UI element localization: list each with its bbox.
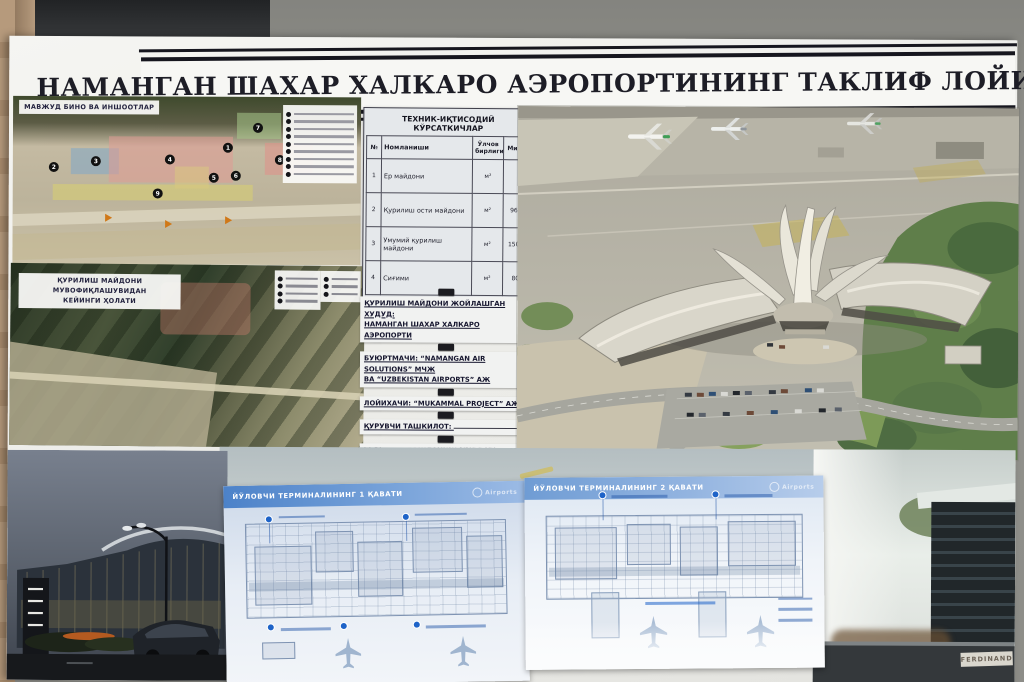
plan-room [626,524,670,565]
poster-board: НАМАНГАН ШАХАР ХАЛКАРО АЭРОПОРТИНИНГ ТАК… [7,36,1018,682]
callout-leader [716,495,717,520]
info-designer: ЛОЙИХАЧИ: “MUKAMMAL PROJECT” АЖ [364,398,528,409]
plan1-title: ЙЎЛОВЧИ ТЕРМИНАЛИНИНГ 1 ҚАВАТИ [232,490,402,501]
binder-clip [438,289,454,296]
ferdinand-label: FERDINAND [960,651,1012,667]
table-title: ТЕХНИК-ИҚТИСОДИЙ КЎРСАТКИЧЛАР [366,110,530,136]
info-client-line2: ВА “UZBEKISTAN AIRPORTS” АЖ [364,375,528,386]
legend-item [286,127,354,132]
plan-room [315,531,354,573]
plan2-drawing-area [524,498,824,670]
map2-legend-b [321,271,361,302]
callout-note [280,627,330,630]
plan1-drawing-area [224,503,530,682]
map-marker: 1 [223,143,233,153]
callout-note [611,495,667,498]
map-marker: 9 [153,188,163,198]
plan2-title: ЙЎЛОВЧИ ТЕРМИНАЛИНИНГ 2 ҚАВАТИ [533,483,703,492]
plan-detail-box [262,642,295,659]
adjusted-site-map: ҚУРИЛИШ МАЙДОНИ МУВОФИҚЛАШУВИДАН КЕЙИНГИ… [9,263,365,448]
plan-legend-bar [778,608,812,611]
map2-legend-a [274,270,320,309]
info-location-label: ҚУРИЛИШ МАЙДОНИ ЖОЙЛАШГАН ХУДУД: [364,298,528,320]
col-header-name: Номланиши [382,136,473,160]
cell-no: 2 [366,193,381,227]
map-marker: 2 [49,162,59,172]
apron-strip [12,223,361,261]
airports-logo: Airports [769,482,814,492]
cell-unit: м² [472,159,503,193]
callout-note [725,494,773,497]
overexposed-fade [525,621,824,670]
callout-dot [266,516,272,522]
info-strip-location: ҚУРИЛИШ МАЙДОНИ ЖОЙЛАШГАН ХУДУД: НАМАНГА… [360,296,532,343]
photo-terminal-dusk [7,450,228,681]
map2-title: ҚУРИЛИШ МАЙДОНИ МУВОФИҚЛАШУВИДАН КЕЙИНГИ… [18,273,180,310]
blank-underline [454,422,518,429]
callout-dot [599,492,605,498]
info-builder: ҚУРУВЧИ ТАШКИЛОТ: [364,422,528,433]
callout-dot [341,623,347,629]
plan-room [412,527,463,573]
floor-plan-sheet-1: ЙЎЛОВЧИ ТЕРМИНАЛИНИНГ 1 ҚАВАТИ Airports [223,481,530,682]
map-marker: 5 [209,173,219,183]
banner-rule-top [139,43,1017,52]
binder-clip [438,412,454,419]
cell-name: Ер майдони [381,159,472,194]
legend-item [286,112,354,117]
info-strip-client: БУЮРТМАЧИ: “NAMANGAN AIR SOLUTIONS” МЧЖ … [360,351,532,387]
floor-plan-sheet-2: ЙЎЛОВЧИ ТЕРМИНАЛИНИНГ 2 ҚАВАТИ Airports [524,476,824,670]
cell-name: Умумий қурилиш майдони [381,227,472,262]
plan-legend-bar [778,597,812,600]
binder-clip [438,344,454,351]
callout-note [278,515,324,518]
binder-clip [438,435,454,442]
terminal-aerial-render [517,106,1020,460]
field-patch [9,340,217,448]
cell-unit: м² [472,227,503,261]
direction-arrow [225,216,232,224]
plan-room [728,521,796,566]
legend-item [286,172,354,177]
table-row: 3 Умумий қурилиш майдони м² 15000.0 [366,227,538,262]
callout-dot [268,625,274,631]
logo-ring-icon [472,487,482,497]
zone-khaki [175,167,209,189]
airplane-silhouette [450,635,477,671]
legend-item [286,157,354,162]
existing-site-map: 1 2 3 4 5 6 7 8 9 МАВЖУД БИН [12,96,361,266]
cell-unit: м² [472,193,503,227]
logo-ring-icon [769,482,779,492]
legend-item [286,134,354,139]
airports-logo: Airports [472,487,517,498]
legend-item [286,164,354,169]
callout-note [426,624,486,628]
binder-clip [438,388,454,395]
legend-item [286,142,354,147]
map-marker: 4 [165,154,175,164]
legend-item [286,119,354,124]
tech-indicators-table: № Номланиши Ўлчов бирлиги Миқдор 1 Ер ма… [365,135,539,296]
callout-note [415,513,467,516]
map2-title-line1: ҚУРИЛИШ МАЙДОНИ МУВОФИҚЛАШУВИДАН [24,276,176,297]
cell-no: 3 [366,227,381,261]
plan-room [255,546,313,606]
aerial-render-graphic [517,106,1020,460]
callout-leader [602,496,603,521]
plan2-header: ЙЎЛОВЧИ ТЕРМИНАЛИНИНГ 2 ҚАВАТИ Airports [524,476,823,500]
logo-text: Airports [782,483,814,490]
map1-title: МАВЖУД БИНО ВА ИНШООТЛАР [19,100,159,115]
building-glass-facade [931,502,1016,644]
map2-title-line2: КЕЙИНГИ ҲОЛАТИ [23,296,175,307]
info-strip-builder: ҚУРУВЧИ ТАШКИЛОТ: [360,420,532,435]
runway-strip [12,203,361,227]
map-legend [283,105,357,183]
col-header-no: № [367,136,382,159]
tech-indicators-panel: ТЕХНИК-ИҚТИСОДИЙ КЎРСАТКИЧЛАР № Номланиш… [362,107,533,299]
dusk-render-graphic [7,450,228,681]
callout-dot [414,622,420,628]
airplane-silhouette [335,637,362,673]
info-strip-designer: ЛОЙИХАЧИ: “MUKAMMAL PROJECT” АЖ [360,396,532,411]
map-marker: 3 [91,156,101,166]
map-marker: 6 [231,171,241,181]
cell-no: 1 [366,159,381,193]
direction-arrow [105,214,112,222]
callout-dot [403,514,409,520]
map-marker: 7 [253,123,263,133]
direction-arrow [165,220,172,228]
col-header-unit: Ўлчов бирлиги [473,136,504,159]
info-client-line1: БУЮРТМАЧИ: “NAMANGAN AIR SOLUTIONS” МЧЖ [364,353,528,375]
legend-item [286,149,354,154]
photo-terminal-day: FERDINAND [813,449,1016,682]
logo-text: Airports [485,488,517,496]
cell-name: Қурилиш ости майдони [381,193,472,228]
info-location-value: НАМАНГАН ШАХАР ХАЛКАРО АЭРОПОРТИ [364,319,528,341]
photo-scene: НАМАНГАН ШАХАР ХАЛКАРО АЭРОПОРТИНИНГ ТАК… [0,0,1024,682]
table-row: 1 Ер майдони м² [366,159,538,194]
table-row: 2 Қурилиш ости майдони м² 9600.0 [366,193,538,228]
